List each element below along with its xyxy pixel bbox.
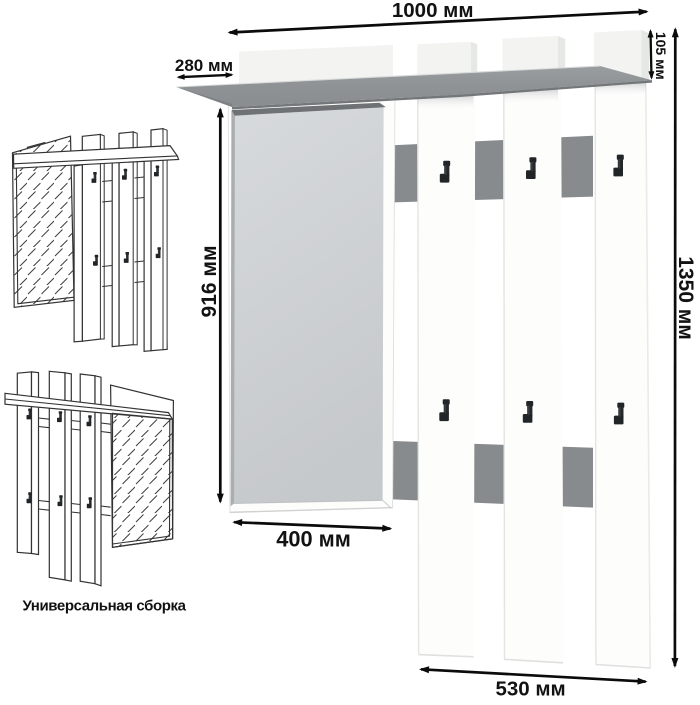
svg-text:400 мм: 400 мм: [276, 527, 351, 552]
svg-text:1000 мм: 1000 мм: [392, 0, 474, 22]
svg-text:280 мм: 280 мм: [175, 56, 233, 75]
svg-text:Универсальная сборка: Универсальная сборка: [22, 598, 186, 615]
svg-text:105 мм: 105 мм: [653, 32, 669, 80]
svg-text:530 мм: 530 мм: [495, 678, 565, 701]
svg-text:916 мм: 916 мм: [198, 246, 221, 318]
svg-text:1350 мм: 1350 мм: [674, 256, 697, 340]
